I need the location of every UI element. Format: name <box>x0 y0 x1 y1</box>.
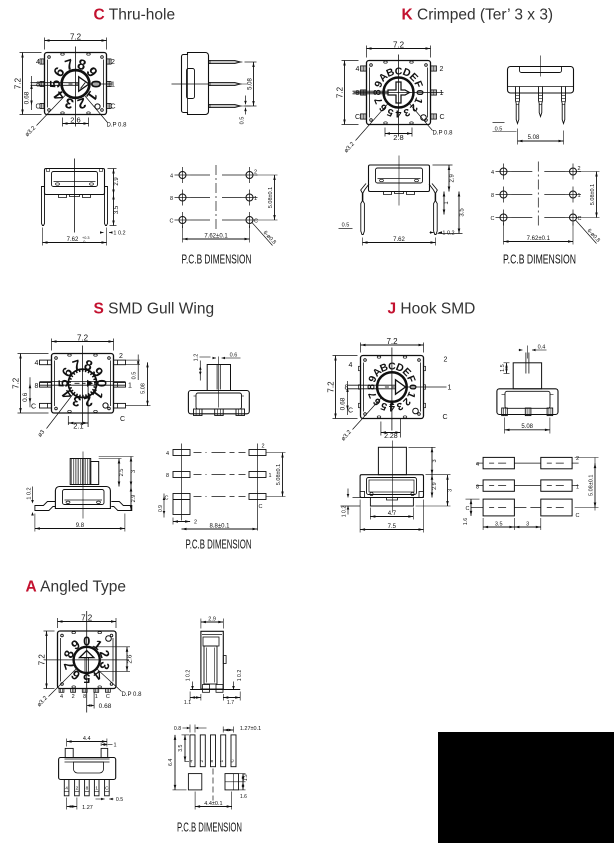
svg-text:0.68: 0.68 <box>340 397 347 410</box>
svg-text:0.4: 0.4 <box>538 345 546 351</box>
svg-text:1: 1 <box>95 694 98 700</box>
svg-text:1: 1 <box>440 90 444 97</box>
svg-text:4: 4 <box>36 59 40 66</box>
svg-text:8: 8 <box>170 196 173 202</box>
svg-text:1.5: 1.5 <box>500 364 506 372</box>
svg-text:C: C <box>165 496 169 502</box>
svg-text:1: 1 <box>254 196 257 202</box>
svg-text:D.P 0.8: D.P 0.8 <box>107 123 128 129</box>
svg-text:1 0.2: 1 0.2 <box>237 670 243 682</box>
svg-text:5.08±0.1: 5.08±0.1 <box>276 464 282 485</box>
svg-text:1.27: 1.27 <box>82 805 93 811</box>
svg-text:J Hook SMD: J Hook SMD <box>388 301 476 318</box>
svg-text:2.1: 2.1 <box>73 422 83 431</box>
svg-text:4: 4 <box>35 360 39 367</box>
svg-text:0.5: 0.5 <box>131 372 137 380</box>
svg-text:2: 2 <box>444 357 448 364</box>
svg-text:1.9: 1.9 <box>243 774 249 781</box>
svg-text:5.08: 5.08 <box>140 383 146 394</box>
svg-text:4: 4 <box>189 760 195 763</box>
svg-text:C: C <box>230 759 236 763</box>
svg-text:1 0.2: 1 0.2 <box>442 231 454 237</box>
svg-text:C: C <box>578 216 582 222</box>
svg-text:1: 1 <box>576 485 579 491</box>
svg-text:C Thru-hole: C Thru-hole <box>94 7 176 24</box>
svg-text:C: C <box>348 408 353 415</box>
svg-text:8: 8 <box>166 473 169 479</box>
svg-text:7.2: 7.2 <box>386 337 398 346</box>
svg-text:P.C.B DIMENSION: P.C.B DIMENSION <box>186 538 252 552</box>
svg-text:0.5: 0.5 <box>342 223 350 229</box>
svg-text:1.1: 1.1 <box>184 700 191 706</box>
svg-text:D.P 0.8: D.P 0.8 <box>433 131 454 137</box>
svg-text:8: 8 <box>83 694 86 700</box>
svg-text:0.8: 0.8 <box>174 726 181 732</box>
svg-text:2: 2 <box>76 786 79 792</box>
svg-text:9.8: 9.8 <box>76 523 85 529</box>
svg-text:C: C <box>355 114 360 121</box>
svg-text:0.5: 0.5 <box>240 117 246 125</box>
svg-text:C: C <box>105 786 109 792</box>
svg-text:2.28: 2.28 <box>384 433 398 440</box>
svg-text:1 0.2: 1 0.2 <box>342 506 348 518</box>
svg-text:4: 4 <box>476 462 479 468</box>
svg-text:7.2: 7.2 <box>336 86 345 98</box>
svg-text:C: C <box>491 216 495 222</box>
svg-text:2: 2 <box>576 456 579 462</box>
svg-text:3.5: 3.5 <box>460 208 466 217</box>
svg-text:1 0.2: 1 0.2 <box>27 487 33 499</box>
svg-text:8: 8 <box>36 82 40 89</box>
svg-text:1: 1 <box>95 786 98 792</box>
svg-text:2: 2 <box>254 170 257 176</box>
svg-text:7.2: 7.2 <box>70 33 82 42</box>
svg-text:5.08±0.1: 5.08±0.1 <box>590 184 596 205</box>
svg-text:5.08: 5.08 <box>248 78 254 90</box>
svg-text:4.4±0.1: 4.4±0.1 <box>204 801 222 807</box>
svg-text:2.6: 2.6 <box>70 115 80 124</box>
svg-text:7.62: 7.62 <box>67 237 79 243</box>
svg-text:4: 4 <box>491 170 494 176</box>
svg-text:5.08: 5.08 <box>521 424 533 430</box>
svg-text:0.9: 0.9 <box>158 505 164 512</box>
svg-text:2: 2 <box>262 444 265 450</box>
svg-text:3: 3 <box>526 521 529 527</box>
svg-text:5: 5 <box>48 80 64 88</box>
svg-text:C: C <box>170 219 174 225</box>
svg-text:1 0.2: 1 0.2 <box>186 670 192 682</box>
svg-text:1: 1 <box>113 743 116 749</box>
svg-text:8: 8 <box>35 383 39 390</box>
svg-text:1: 1 <box>448 385 452 392</box>
svg-text:2: 2 <box>199 760 205 763</box>
svg-text:1: 1 <box>111 82 115 89</box>
svg-text:2.9: 2.9 <box>450 173 456 182</box>
svg-text:K Crimped (Ter’ 3 x 3): K Crimped (Ter’ 3 x 3) <box>402 7 554 24</box>
svg-text:3: 3 <box>131 470 137 473</box>
svg-text:6.4: 6.4 <box>168 759 174 766</box>
svg-text:7.2: 7.2 <box>81 614 93 623</box>
svg-text:4: 4 <box>356 66 360 73</box>
svg-text:4.7: 4.7 <box>388 511 397 517</box>
svg-text:5: 5 <box>55 379 71 387</box>
svg-text:4: 4 <box>166 451 169 457</box>
svg-text:P.C.B DIMENSION: P.C.B DIMENSION <box>182 253 252 267</box>
svg-text:0.68: 0.68 <box>99 703 112 710</box>
svg-text:C: C <box>106 694 110 700</box>
svg-text:5.08±0.1: 5.08±0.1 <box>589 475 595 496</box>
svg-text:2: 2 <box>119 353 123 360</box>
svg-text:4: 4 <box>60 694 63 700</box>
svg-text:0.6: 0.6 <box>22 392 29 401</box>
svg-text:4.4: 4.4 <box>83 736 91 742</box>
svg-text:7.5: 7.5 <box>388 524 397 530</box>
svg-text:7.2: 7.2 <box>77 334 89 343</box>
svg-text:C: C <box>120 416 125 423</box>
svg-text:D.P 0.8: D.P 0.8 <box>122 692 143 698</box>
svg-text:8: 8 <box>476 485 479 491</box>
svg-text:-0: -0 <box>82 240 85 244</box>
svg-text:7.62±0.1: 7.62±0.1 <box>204 233 228 239</box>
svg-text:8: 8 <box>86 786 89 792</box>
svg-text:3.5: 3.5 <box>495 521 503 527</box>
svg-text:2: 2 <box>111 59 115 66</box>
svg-text:2.9: 2.9 <box>432 482 438 490</box>
svg-text:2: 2 <box>72 694 75 700</box>
svg-text:1: 1 <box>219 760 225 763</box>
svg-text:1.7: 1.7 <box>227 700 234 706</box>
svg-text:2.9: 2.9 <box>208 616 216 622</box>
svg-text:0.68: 0.68 <box>24 91 31 104</box>
svg-text:C: C <box>110 104 115 111</box>
svg-text:P.C.B DIMENSION: P.C.B DIMENSION <box>503 253 576 267</box>
svg-text:1: 1 <box>578 193 581 199</box>
svg-text:1.2: 1.2 <box>194 354 200 362</box>
svg-text:7.2: 7.2 <box>393 41 405 50</box>
svg-text:7.2: 7.2 <box>12 377 21 389</box>
svg-text:3: 3 <box>432 459 438 462</box>
svg-text:7.2: 7.2 <box>327 381 336 393</box>
svg-text:S SMD Gull Wing: S SMD Gull Wing <box>94 301 215 318</box>
svg-text:0.5: 0.5 <box>116 797 123 803</box>
svg-text:1.6: 1.6 <box>240 794 247 800</box>
svg-text:8: 8 <box>356 90 360 97</box>
svg-text:5.08: 5.08 <box>528 135 540 141</box>
svg-text:P.C.B DIMENSION: P.C.B DIMENSION <box>177 821 242 835</box>
svg-text:4: 4 <box>170 174 173 180</box>
svg-text:C: C <box>440 114 445 121</box>
svg-text:2.9: 2.9 <box>114 177 120 186</box>
svg-text:C: C <box>443 414 448 421</box>
svg-text:2.5: 2.5 <box>119 469 125 477</box>
svg-text:C: C <box>254 219 258 225</box>
svg-text:3.5: 3.5 <box>178 744 184 751</box>
svg-text:2: 2 <box>194 520 197 526</box>
svg-text:C: C <box>466 506 470 512</box>
svg-text:0.6: 0.6 <box>230 353 238 359</box>
svg-text:7.2: 7.2 <box>38 654 47 666</box>
svg-text:8: 8 <box>491 193 494 199</box>
svg-text:3.5: 3.5 <box>114 205 120 214</box>
svg-text:1 0.2: 1 0.2 <box>113 231 125 237</box>
svg-text:4: 4 <box>65 786 68 792</box>
svg-text:2.6: 2.6 <box>127 654 134 663</box>
svg-text:7.2: 7.2 <box>14 77 23 89</box>
svg-text:0: 0 <box>94 379 110 387</box>
svg-text:C: C <box>31 404 36 411</box>
svg-text:1: 1 <box>128 383 132 390</box>
svg-text:2: 2 <box>440 66 444 73</box>
svg-text:7.62±0.1: 7.62±0.1 <box>527 236 551 242</box>
svg-text:8.8±0.1: 8.8±0.1 <box>210 523 231 529</box>
svg-text:7.62: 7.62 <box>393 237 405 243</box>
svg-text:1.27±0.1: 1.27±0.1 <box>240 726 261 732</box>
svg-text:3: 3 <box>448 489 454 492</box>
svg-text:A Angled Type: A Angled Type <box>26 579 127 596</box>
svg-text:2.8: 2.8 <box>393 133 403 142</box>
svg-text:5.08±0.1: 5.08±0.1 <box>268 187 274 208</box>
svg-text:C: C <box>259 504 263 510</box>
svg-text:2.9: 2.9 <box>131 495 137 503</box>
svg-text:C: C <box>576 513 580 519</box>
svg-text:C: C <box>35 104 40 111</box>
svg-text:4: 4 <box>349 362 353 369</box>
svg-text:1: 1 <box>269 473 272 479</box>
svg-text:2: 2 <box>578 166 581 172</box>
svg-text:1.6: 1.6 <box>463 518 469 525</box>
svg-text:8: 8 <box>209 760 215 763</box>
